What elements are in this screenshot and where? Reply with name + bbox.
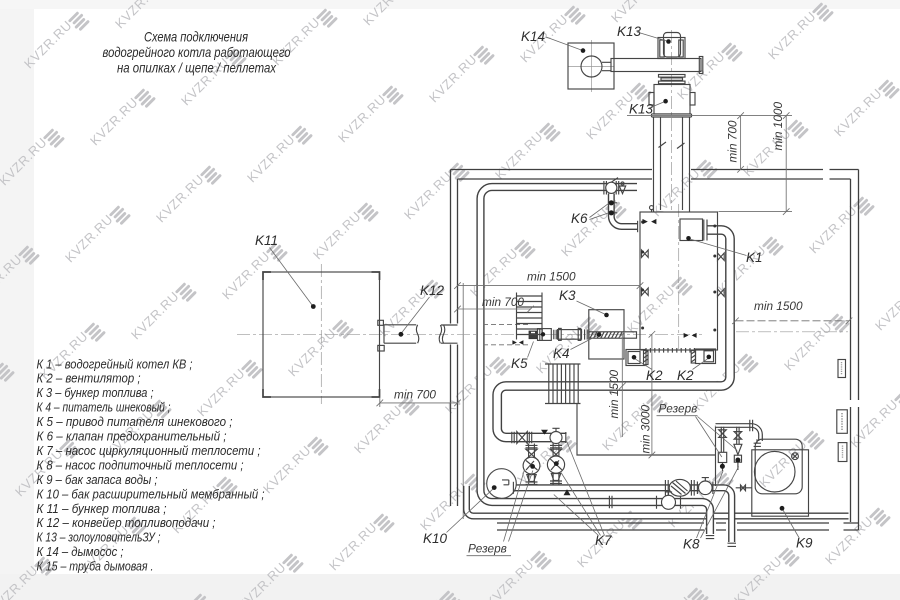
svg-text:K8: K8 <box>683 537 700 552</box>
svg-text:К 1 – водогрейный котел КВ ;: К 1 – водогрейный котел КВ ; <box>37 356 193 371</box>
svg-text:К 4 – питатель шнековый ;: К 4 – питатель шнековый ; <box>37 400 171 415</box>
svg-text:K2: K2 <box>646 368 663 383</box>
svg-text:min 1500: min 1500 <box>527 270 576 284</box>
svg-text:KVZR.RU: KVZR.RU <box>847 396 900 450</box>
svg-text:Резерв: Резерв <box>659 402 698 416</box>
svg-text:KVZR.RU: KVZR.RU <box>351 402 405 456</box>
svg-text:KVZR.RU: KVZR.RU <box>153 171 207 225</box>
svg-text:K12: K12 <box>420 283 445 298</box>
svg-text:KVZR.RU: KVZR.RU <box>244 131 298 185</box>
svg-text:KVZR.RU: KVZR.RU <box>426 51 480 105</box>
svg-text:K3: K3 <box>559 288 576 303</box>
svg-text:K9: K9 <box>796 536 813 551</box>
svg-text:K6: K6 <box>571 211 588 226</box>
svg-text:min 1500: min 1500 <box>754 299 803 313</box>
svg-text:K1: K1 <box>746 250 763 265</box>
svg-text:KVZR.RU: KVZR.RU <box>260 442 314 496</box>
svg-text:KVZR.RU: KVZR.RU <box>467 245 521 299</box>
svg-text:min 700: min 700 <box>482 295 524 309</box>
svg-text:К 9 – бак запаса воды ;: К 9 – бак запаса воды ; <box>37 472 158 487</box>
svg-text:KVZR.RU: KVZR.RU <box>781 319 835 373</box>
svg-text:Резерв: Резерв <box>468 542 507 556</box>
svg-text:min 3000: min 3000 <box>639 405 653 454</box>
svg-text:К 5 – привод питателя шнеков: К 5 – привод питателя шнекового ; <box>37 414 233 429</box>
svg-text:К 13 – золоуловительЗУ ;: К 13 – золоуловительЗУ ; <box>37 530 161 545</box>
svg-text:K4: K4 <box>553 346 570 361</box>
svg-text:KVZR.RU: KVZR.RU <box>310 208 364 262</box>
svg-text:K2: K2 <box>677 368 694 383</box>
svg-text:KVZR.RU: KVZR.RU <box>269 14 323 68</box>
svg-text:водогрейного котла работающего: водогрейного котла работающего <box>103 44 291 60</box>
svg-text:К 2 – вентилятор ;: К 2 – вентилятор ; <box>37 371 141 386</box>
svg-text:KVZR.RU: KVZR.RU <box>335 91 389 145</box>
svg-text:K11: K11 <box>255 233 278 248</box>
svg-text:KVZR.RU: KVZR.RU <box>285 325 339 379</box>
svg-text:К 3 – бункер топлива ;: К 3 – бункер топлива ; <box>37 385 154 400</box>
svg-text:KVZR.RU: KVZR.RU <box>624 282 678 336</box>
svg-text:К 14 – дымосос ;: К 14 – дымосос ; <box>37 544 124 559</box>
svg-text:K13: K13 <box>617 24 642 39</box>
svg-text:KVZR.RU: KVZR.RU <box>872 279 900 333</box>
svg-text:KVZR.RU: KVZR.RU <box>492 128 546 182</box>
svg-text:K10: K10 <box>423 531 448 546</box>
svg-text:К 15 – труба дымовая .: К 15 – труба дымовая . <box>37 559 154 574</box>
svg-text:KVZR.RU: KVZR.RU <box>822 513 876 567</box>
svg-text:K5: K5 <box>511 356 528 371</box>
svg-text:K14: K14 <box>521 29 545 44</box>
svg-text:min 700: min 700 <box>394 388 436 402</box>
svg-text:min 1000: min 1000 <box>771 102 785 151</box>
svg-text:KVZR.RU: KVZR.RU <box>401 168 455 222</box>
svg-text:К 11 – бункер топлива ;: К 11 – бункер топлива ; <box>37 501 167 516</box>
svg-text:K13: K13 <box>629 102 654 117</box>
svg-text:KVZR.RU: KVZR.RU <box>194 365 248 419</box>
svg-text:KVZR.RU: KVZR.RU <box>128 288 182 342</box>
svg-text:min 1500: min 1500 <box>607 370 621 419</box>
svg-text:KVZR.RU: KVZR.RU <box>326 519 380 573</box>
svg-text:KVZR.RU: KVZR.RU <box>219 248 273 302</box>
svg-text:KVZR.RU: KVZR.RU <box>62 211 116 265</box>
svg-text:KVZR.RU: KVZR.RU <box>831 85 885 139</box>
svg-text:min 700: min 700 <box>726 120 740 162</box>
svg-text:KVZR.RU: KVZR.RU <box>87 94 141 148</box>
svg-text:К 6 – клапан предохранительн: К 6 – клапан предохранительный ; <box>37 429 227 444</box>
svg-text:Схема подключения: Схема подключения <box>144 29 248 45</box>
svg-text:KVZR.RU: KVZR.RU <box>649 165 703 219</box>
svg-text:К 10 – бак расширительный ме: К 10 – бак расширительный мембранный ; <box>37 486 265 501</box>
svg-text:K7: K7 <box>595 533 612 548</box>
svg-text:К 8 – насос подпиточный тепл: К 8 – насос подпиточный теплосети ; <box>37 457 244 472</box>
svg-text:KVZR.RU: KVZR.RU <box>765 8 819 62</box>
svg-text:KVZR.RU: KVZR.RU <box>806 202 860 256</box>
svg-text:К 12 – конвейер топливоподач: К 12 – конвейер топливоподачи ; <box>37 515 216 530</box>
svg-text:К 7 – насос циркуляционный т: К 7 – насос циркуляционный теплосети ; <box>37 443 261 458</box>
svg-text:на опилках / щепе / пеллетах: на опилках / щепе / пеллетах <box>117 60 277 76</box>
